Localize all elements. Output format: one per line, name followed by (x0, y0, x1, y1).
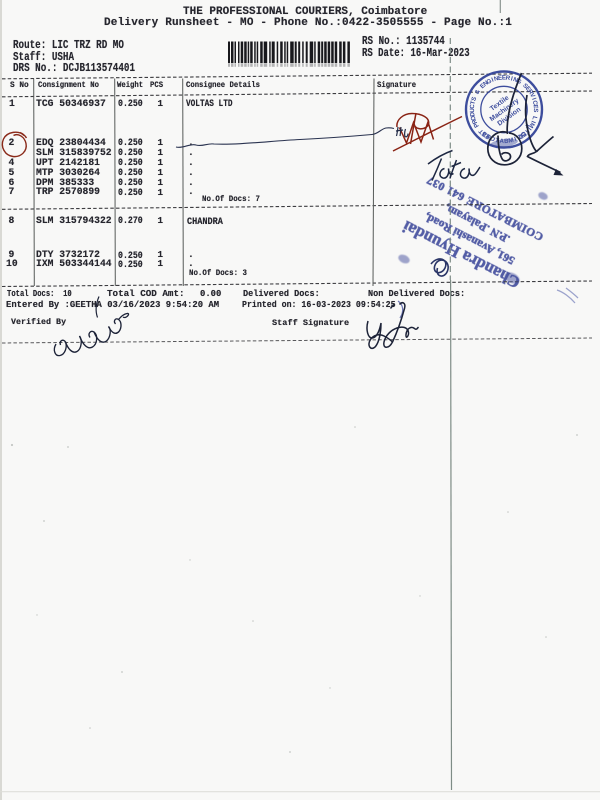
svg-text:&: & (474, 88, 483, 96)
svg-text:S: S (470, 96, 478, 102)
svg-text:S: S (532, 108, 539, 112)
